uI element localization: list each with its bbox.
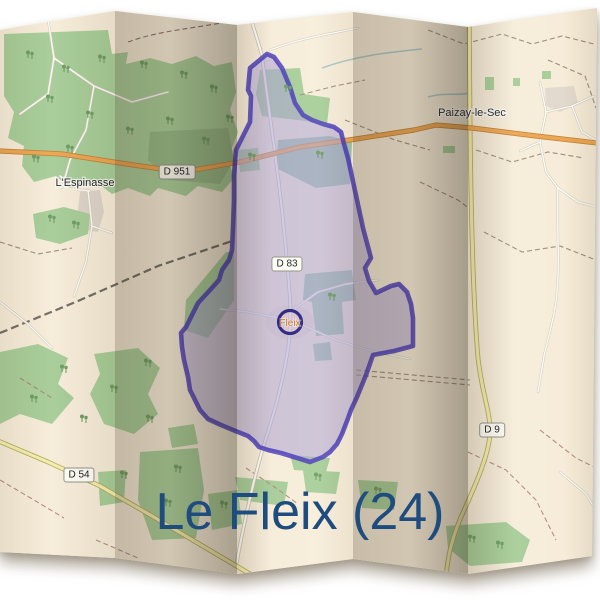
paper-shadow: L'Espinasse Paizay-le-Sec Fleix D 951 D … <box>0 0 600 600</box>
road-shield-d54: D 54 <box>63 468 94 483</box>
map-stage: L'Espinasse Paizay-le-Sec Fleix D 951 D … <box>0 0 600 600</box>
road-shield-d9: D 9 <box>479 423 505 438</box>
map-title: Le Fleix (24) <box>0 486 600 538</box>
label-paizay-le-sec: Paizay-le-Sec <box>438 107 506 119</box>
road-shield-d951: D 951 <box>159 165 196 180</box>
label-fleix: Fleix <box>279 318 300 329</box>
label-espinasse: L'Espinasse <box>56 177 115 189</box>
folded-map-paper: L'Espinasse Paizay-le-Sec Fleix D 951 D … <box>0 0 600 600</box>
road-shield-d83: D 83 <box>271 257 302 272</box>
